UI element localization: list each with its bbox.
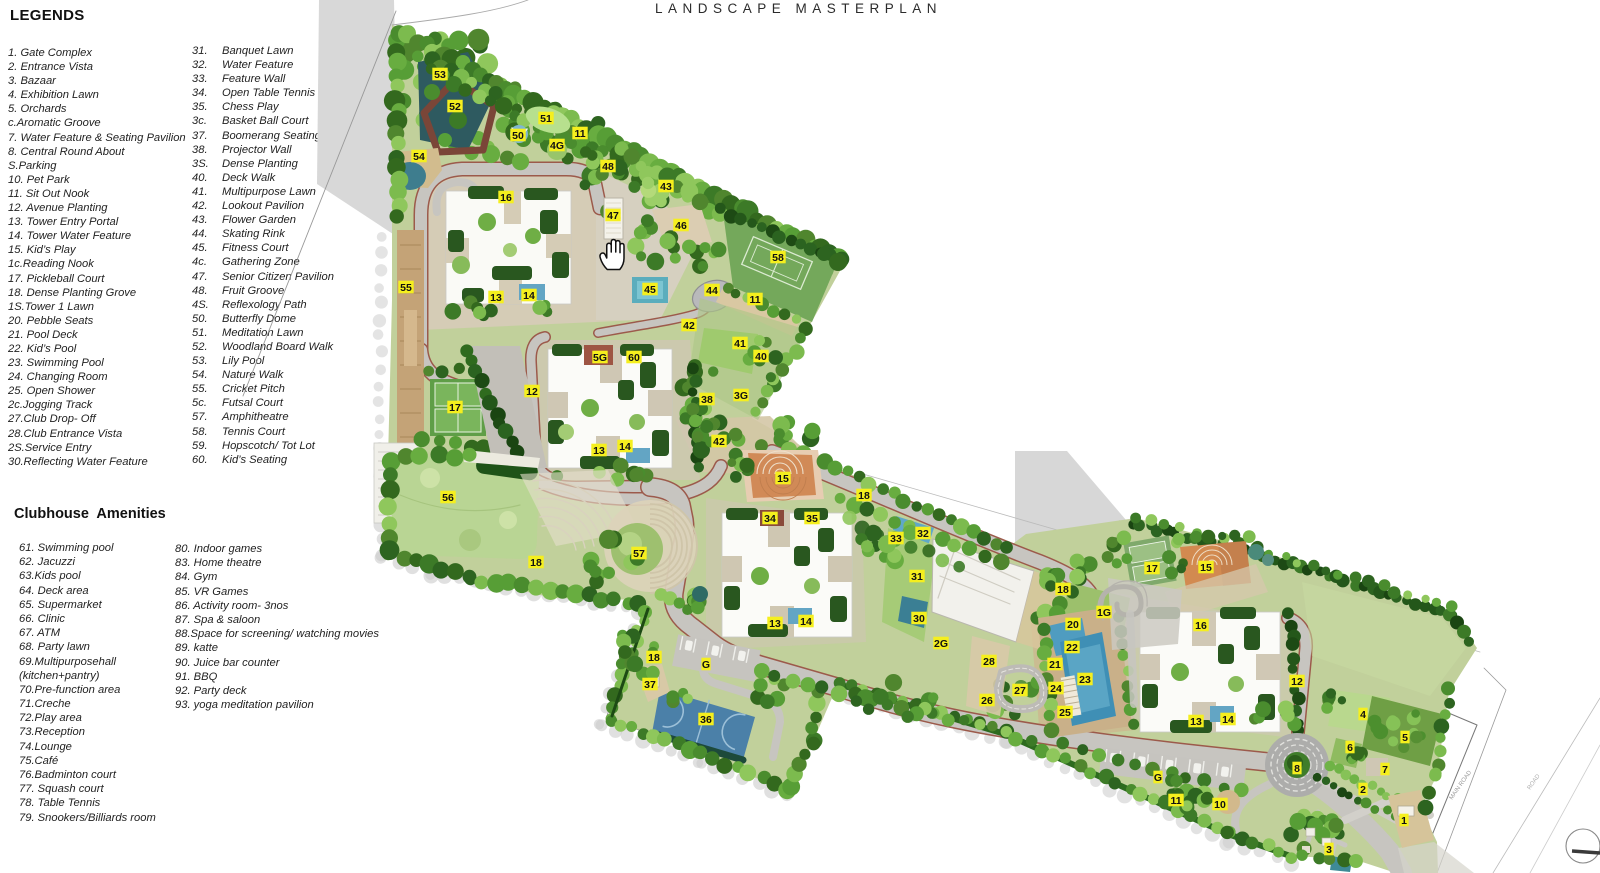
svg-text:42: 42	[683, 320, 695, 332]
svg-text:15: 15	[777, 473, 789, 485]
svg-text:28: 28	[983, 656, 995, 668]
svg-text:16: 16	[500, 192, 512, 204]
svg-text:14: 14	[619, 441, 631, 453]
svg-text:50: 50	[512, 130, 524, 142]
svg-text:27: 27	[1014, 685, 1026, 697]
svg-text:14: 14	[1222, 714, 1234, 726]
svg-text:12: 12	[1291, 676, 1303, 688]
svg-text:32: 32	[917, 528, 929, 540]
svg-text:10: 10	[1214, 799, 1226, 811]
svg-text:3: 3	[1326, 844, 1332, 856]
svg-text:25: 25	[1059, 707, 1071, 719]
svg-text:37: 37	[644, 679, 656, 691]
svg-text:43: 43	[660, 181, 672, 193]
svg-text:11: 11	[1170, 795, 1181, 807]
svg-text:31: 31	[911, 571, 923, 583]
svg-text:11: 11	[749, 294, 760, 306]
svg-text:7: 7	[1382, 764, 1388, 776]
svg-text:11: 11	[574, 128, 585, 140]
svg-text:13: 13	[490, 292, 502, 304]
svg-text:55: 55	[400, 282, 412, 294]
svg-text:12: 12	[526, 386, 538, 398]
svg-text:20: 20	[1067, 619, 1079, 631]
svg-text:24: 24	[1050, 683, 1062, 695]
svg-text:40: 40	[755, 351, 767, 363]
svg-text:18: 18	[1057, 584, 1069, 596]
svg-text:41: 41	[734, 338, 746, 350]
svg-text:60: 60	[628, 352, 640, 364]
svg-text:ROAD: ROAD	[1527, 773, 1542, 791]
svg-text:48: 48	[602, 161, 614, 173]
svg-text:38: 38	[701, 394, 713, 406]
svg-text:G: G	[702, 659, 710, 671]
svg-text:53: 53	[434, 69, 446, 81]
svg-text:18: 18	[530, 557, 542, 569]
svg-text:26: 26	[981, 695, 993, 707]
svg-text:13: 13	[593, 445, 605, 457]
svg-text:54: 54	[413, 151, 425, 163]
svg-text:1G: 1G	[1097, 607, 1111, 619]
svg-text:34: 34	[764, 513, 776, 525]
svg-text:17: 17	[1146, 563, 1158, 575]
svg-text:5G: 5G	[593, 352, 607, 364]
svg-text:35: 35	[806, 513, 818, 525]
svg-text:16: 16	[1195, 620, 1207, 632]
svg-text:18: 18	[858, 490, 870, 502]
svg-text:2G: 2G	[934, 638, 948, 650]
svg-text:42: 42	[713, 436, 725, 448]
svg-text:8: 8	[1294, 763, 1300, 775]
svg-text:14: 14	[523, 290, 535, 302]
svg-text:13: 13	[769, 618, 781, 630]
svg-text:5: 5	[1402, 732, 1408, 744]
svg-text:3G: 3G	[734, 390, 748, 402]
svg-text:15: 15	[1200, 562, 1212, 574]
svg-text:36: 36	[700, 714, 712, 726]
svg-text:46: 46	[675, 220, 687, 232]
svg-text:52: 52	[449, 101, 461, 113]
svg-text:45: 45	[644, 284, 656, 296]
svg-text:2: 2	[1360, 784, 1366, 796]
svg-text:23: 23	[1079, 674, 1091, 686]
svg-text:21: 21	[1049, 659, 1061, 671]
svg-text:4G: 4G	[550, 140, 564, 152]
svg-text:30: 30	[913, 613, 925, 625]
svg-text:17: 17	[449, 402, 461, 414]
svg-text:18: 18	[648, 652, 660, 664]
svg-text:56: 56	[442, 492, 454, 504]
svg-text:13: 13	[1190, 716, 1202, 728]
svg-text:22: 22	[1066, 642, 1078, 654]
svg-text:G: G	[1154, 772, 1162, 784]
svg-text:4: 4	[1360, 709, 1366, 721]
svg-text:14: 14	[800, 616, 812, 628]
svg-text:33: 33	[890, 533, 902, 545]
svg-text:6: 6	[1347, 742, 1353, 754]
svg-text:51: 51	[540, 113, 552, 125]
svg-text:1: 1	[1401, 815, 1407, 827]
svg-text:44: 44	[706, 285, 718, 297]
svg-text:58: 58	[772, 252, 784, 264]
svg-text:47: 47	[607, 210, 619, 222]
svg-text:57: 57	[633, 548, 645, 560]
